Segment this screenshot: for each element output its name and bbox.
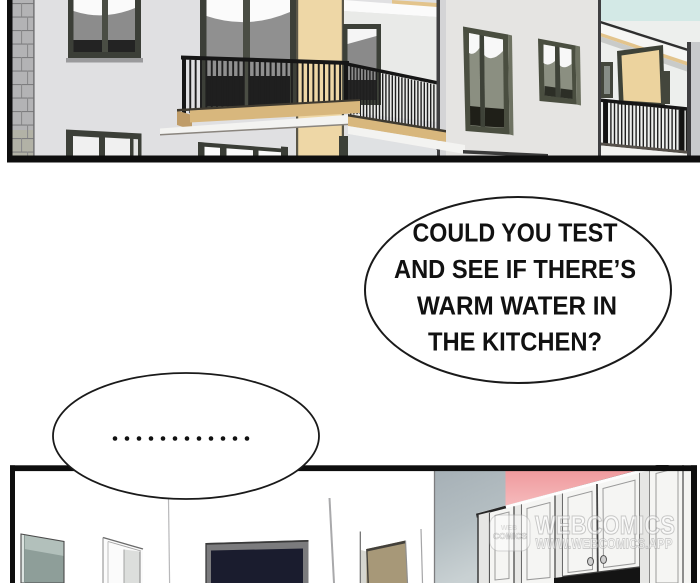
svg-text:WARM WATER IN: WARM WATER IN — [417, 291, 617, 321]
svg-text:THE KITCHEN?: THE KITCHEN? — [428, 327, 602, 357]
svg-text:COULD YOU TEST: COULD YOU TEST — [413, 218, 618, 248]
svg-text:WWW.WEBCOMICS.APP: WWW.WEBCOMICS.APP — [536, 536, 673, 553]
svg-text:COMICS: COMICS — [493, 531, 527, 541]
svg-text:AND SEE IF THERE’S: AND SEE IF THERE’S — [394, 254, 636, 284]
